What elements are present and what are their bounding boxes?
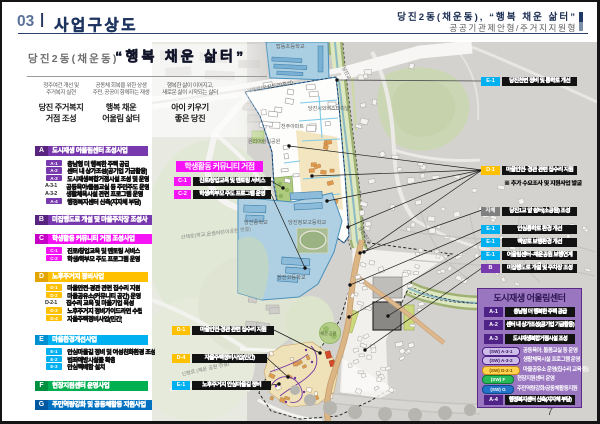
svg-text:당진중학교: 당진중학교 bbox=[244, 218, 268, 226]
svg-text:천주아파트: 천주아파트 bbox=[281, 123, 304, 130]
svg-text:당진고등학교: 당진고등학교 bbox=[277, 273, 306, 281]
svg-text:채운공원: 채운공원 bbox=[320, 330, 337, 337]
svg-text:당진시외버스터미널: 당진시외버스터미널 bbox=[308, 105, 350, 112]
svg-text:당진정보고등학교: 당진정보고등학교 bbox=[288, 218, 326, 226]
svg-text:탑동초등학교: 탑동초등학교 bbox=[276, 42, 305, 50]
svg-text:온리어린이공원: 온리어린이공원 bbox=[248, 138, 281, 145]
